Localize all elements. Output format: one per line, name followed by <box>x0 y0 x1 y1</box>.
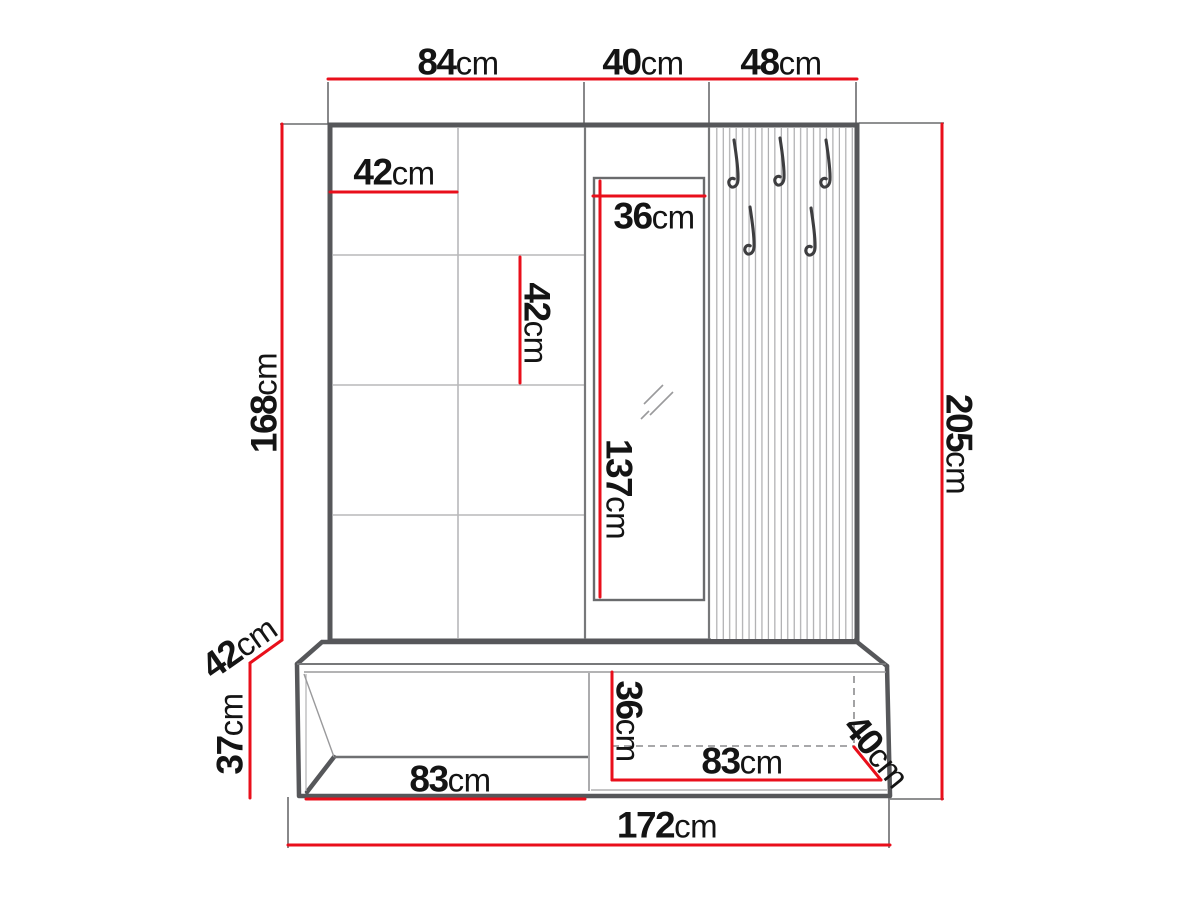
dim-unit: cm <box>610 719 647 762</box>
dim-unit: cm <box>600 496 637 539</box>
dim-mirror-height-label: 137cm <box>601 439 638 539</box>
dim-value: 42 <box>517 282 558 320</box>
shelf-left-wall-edge <box>304 674 334 757</box>
dim-unit: cm <box>448 762 491 799</box>
dim-total-height-label: 205cm <box>941 394 978 494</box>
dim-top-hooks-width-label: 48cm <box>740 44 821 81</box>
dim-value: 83 <box>409 759 447 800</box>
bench-outline <box>297 642 890 796</box>
lamella-slat-panel <box>711 128 854 639</box>
dim-top-mirror-width-label: 40cm <box>602 44 683 81</box>
dim-value: 84 <box>417 42 455 83</box>
dim-value: 137 <box>599 439 640 496</box>
dim-value: 172 <box>617 805 674 846</box>
dim-drawer-height-label: 36cm <box>611 680 648 761</box>
dim-value: 83 <box>701 741 739 782</box>
dim-value: 37 <box>210 736 251 774</box>
furniture-dimension-diagram: 84cm 40cm 48cm 42cm 42cm 36cm 137cm 168c… <box>0 0 1200 899</box>
dim-unit: cm <box>740 744 783 781</box>
dim-value: 48 <box>740 42 778 83</box>
dim-unit: cm <box>392 155 435 192</box>
wardrobe-upper-section <box>330 125 857 641</box>
dim-unit: cm <box>518 321 555 364</box>
dim-value: 205 <box>939 394 980 451</box>
dim-value: 36 <box>613 196 651 237</box>
dim-unit: cm <box>652 199 695 236</box>
dim-value: 168 <box>244 396 285 453</box>
dim-unit: cm <box>641 45 684 82</box>
dim-total-width-label: 172cm <box>617 807 717 844</box>
dim-value: 40 <box>602 42 640 83</box>
dim-mirror-width-label: 36cm <box>613 198 694 235</box>
dim-value: 42 <box>353 152 391 193</box>
dim-shelf-width-label: 83cm <box>409 761 490 798</box>
dim-drawer-width-label: 83cm <box>701 743 782 780</box>
dim-unit: cm <box>247 353 284 396</box>
dim-bench-height-label: 37cm <box>212 693 249 774</box>
dim-unit: cm <box>779 45 822 82</box>
dim-top-left-width-label: 84cm <box>417 44 498 81</box>
dim-panel-height-label: 168cm <box>246 353 283 453</box>
dim-unit: cm <box>213 693 250 736</box>
dim-unit: cm <box>940 451 977 494</box>
dim-unit: cm <box>456 45 499 82</box>
dim-value: 36 <box>609 680 650 718</box>
dim-cushion-width-label: 42cm <box>353 154 434 191</box>
dim-unit: cm <box>674 808 717 845</box>
dim-cushion-height-label: 42cm <box>519 282 556 363</box>
bench-lower-section <box>297 642 890 796</box>
